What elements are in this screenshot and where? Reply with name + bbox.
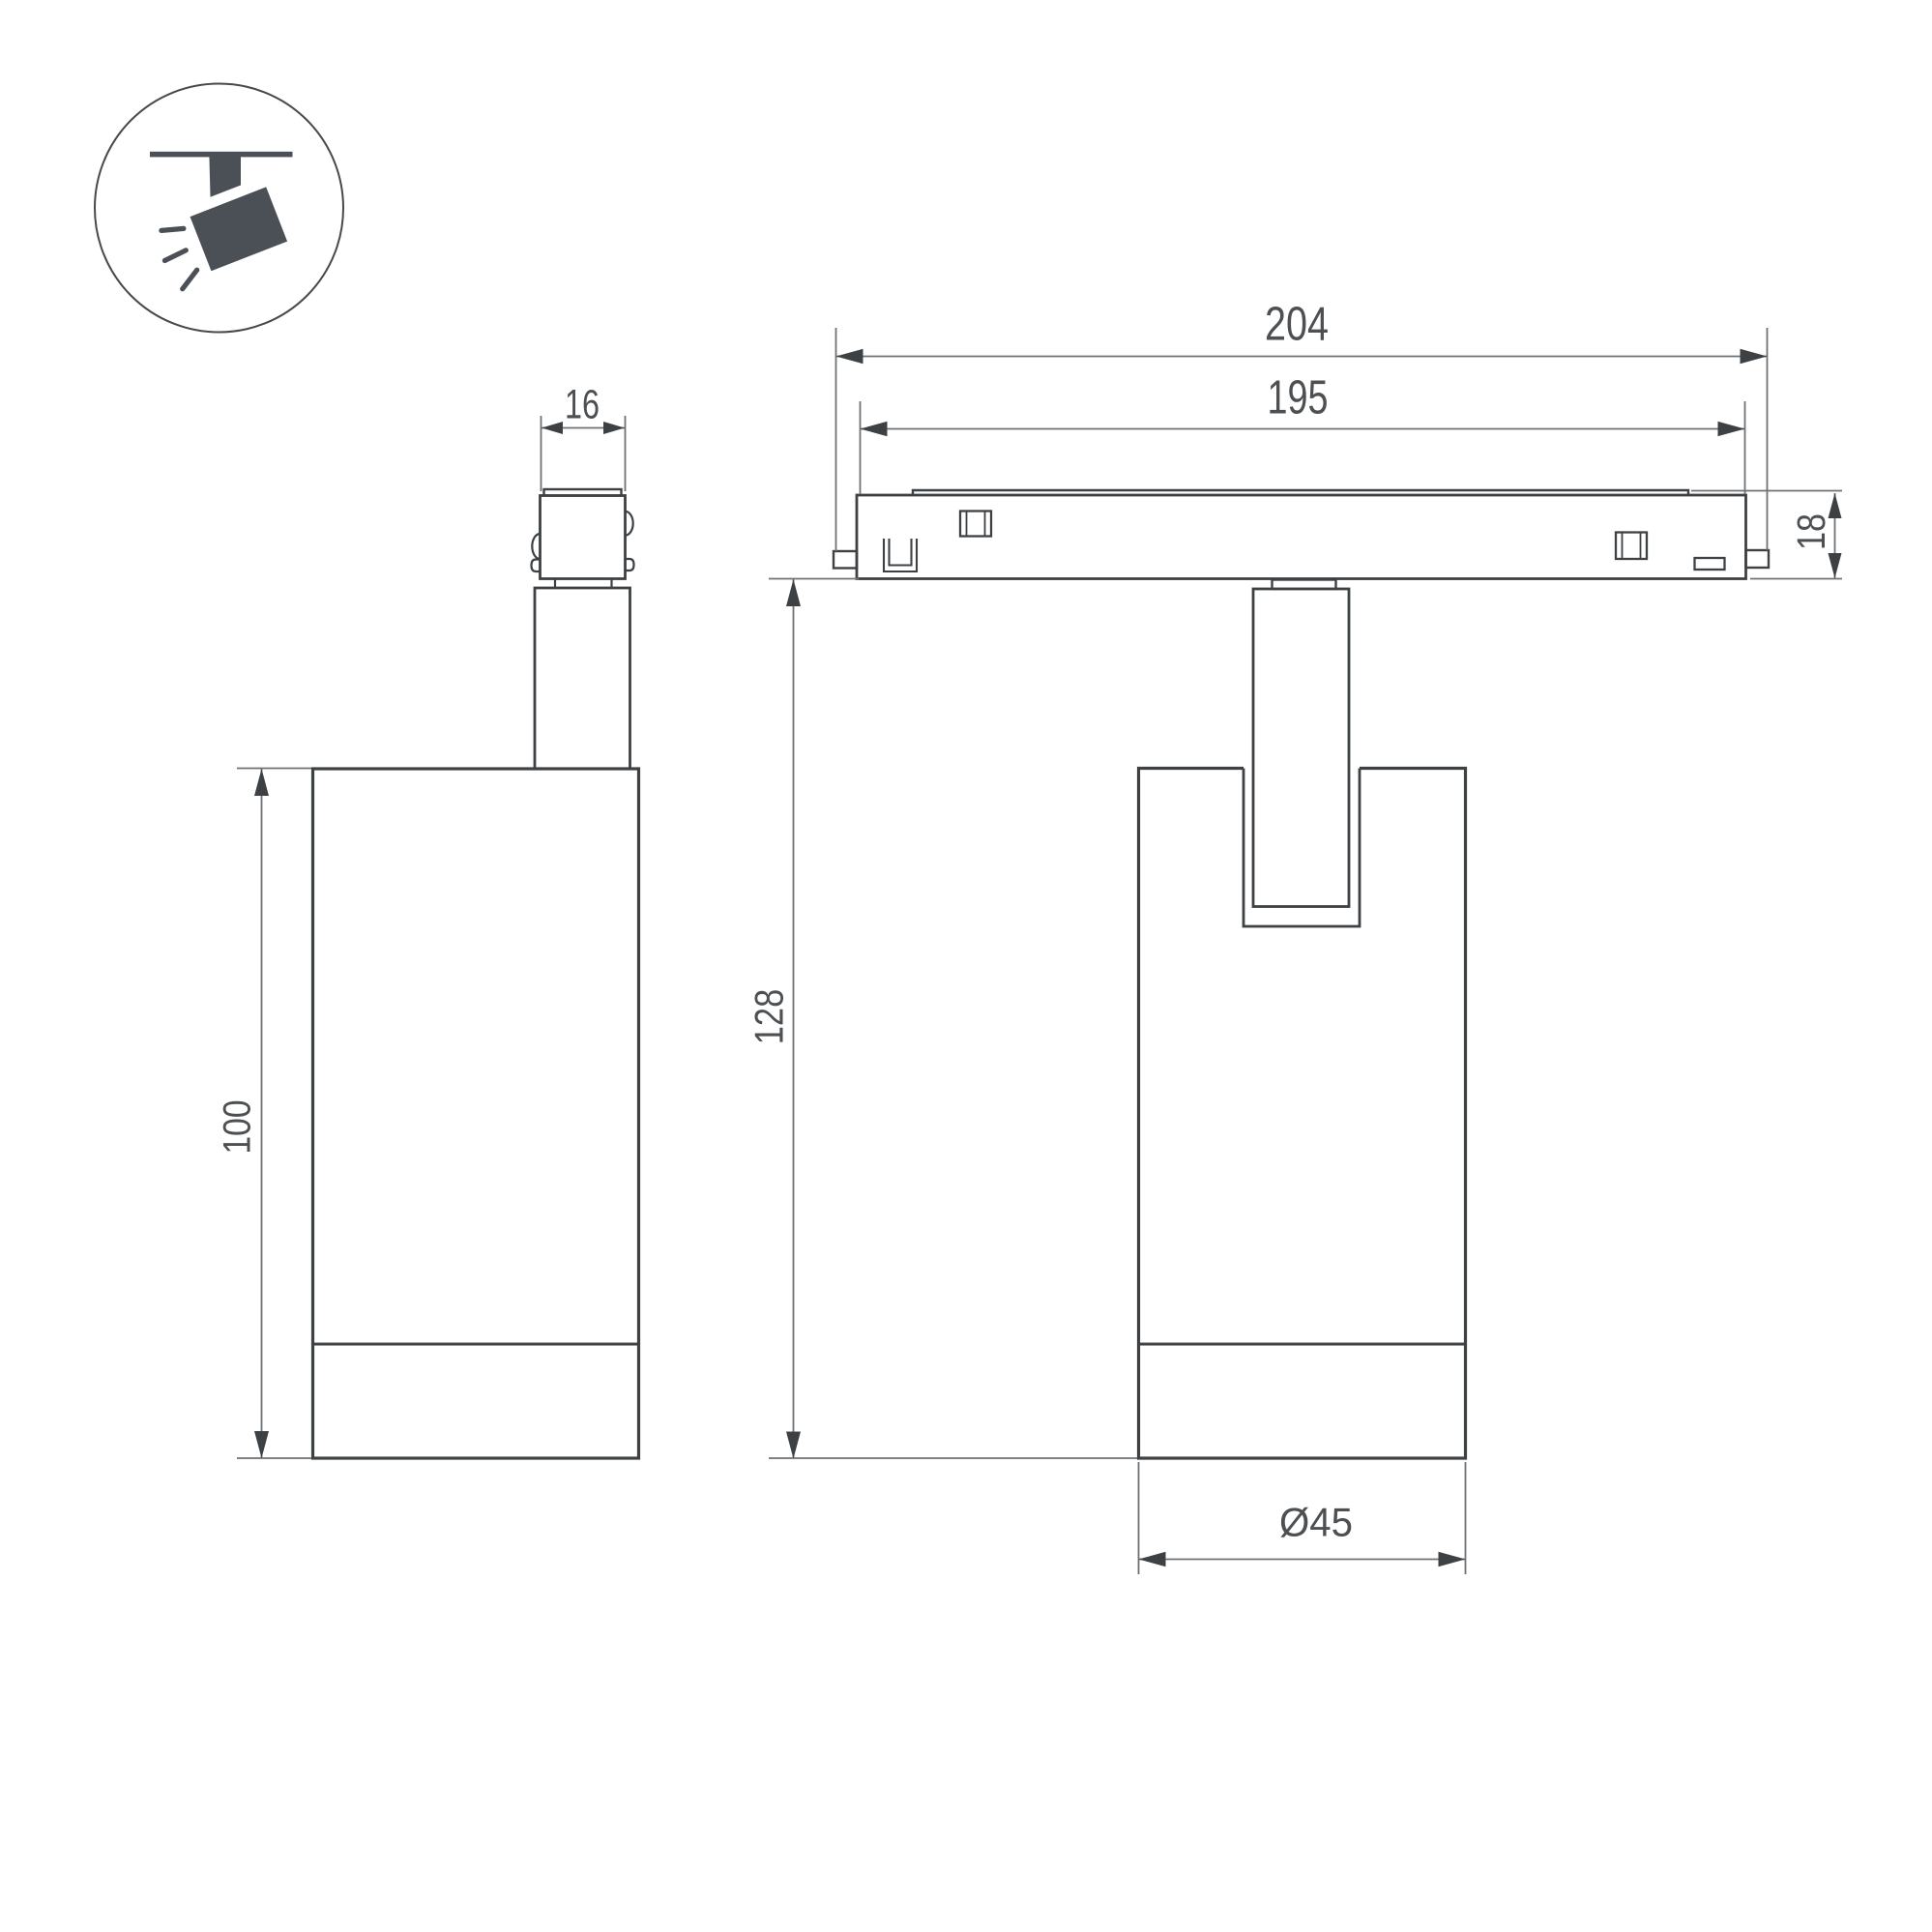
svg-text:16: 16 <box>565 382 600 428</box>
svg-text:195: 195 <box>1268 372 1329 424</box>
svg-text:Ø45: Ø45 <box>1279 1500 1353 1545</box>
svg-text:204: 204 <box>1265 299 1329 351</box>
svg-text:18: 18 <box>1789 513 1833 550</box>
svg-text:128: 128 <box>746 989 792 1045</box>
svg-text:100: 100 <box>217 1100 259 1155</box>
